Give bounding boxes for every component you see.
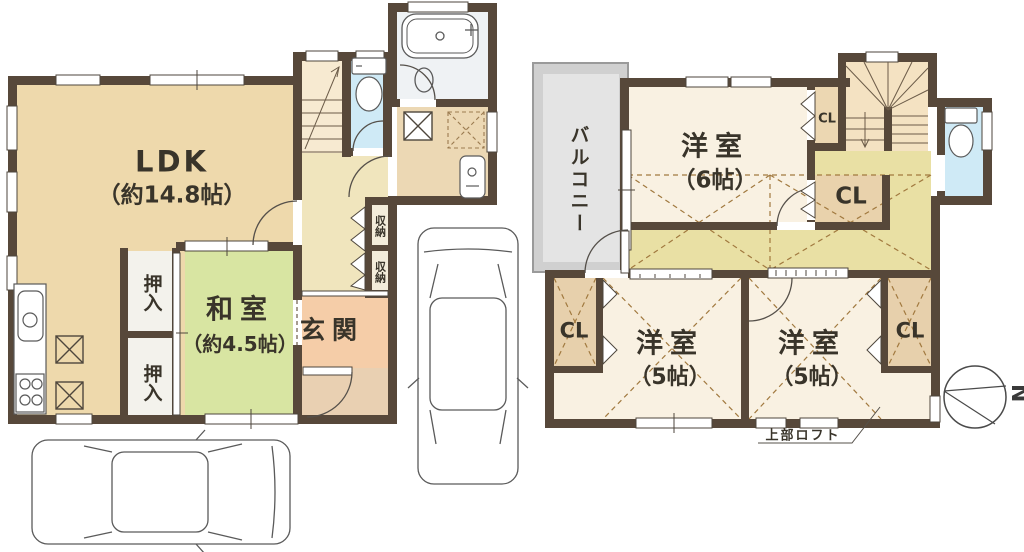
washbasin-icon <box>460 156 485 198</box>
car-icon-vertical <box>408 228 528 484</box>
floor2-plan <box>533 52 992 443</box>
yoshitsu5-right-size-label: （5帖） <box>771 367 852 389</box>
washitsu-size-label: （約4.5帖） <box>182 334 297 354</box>
cl-lower-right-label: CL <box>896 321 925 342</box>
shunou-2-label: 収納 <box>375 261 386 283</box>
cl-lower-left-label: CL <box>560 321 589 342</box>
kitchen-counter <box>14 284 46 414</box>
compass-icon: N <box>944 366 1024 428</box>
cl-large-label: CL <box>835 186 867 209</box>
yoshitsu6-label: 洋室 <box>681 134 749 161</box>
ldk-label: LDK <box>135 148 209 177</box>
shunou-1-label: 収納 <box>375 215 386 237</box>
ldk-size-label: （約14.8帖） <box>98 185 247 208</box>
yoshitsu5-left-label: 洋室 <box>636 331 704 358</box>
yoshitsu5-right-label: 洋室 <box>778 331 846 358</box>
oshiire-2-label: 押入 <box>142 364 161 402</box>
cl-small-label: CL <box>818 113 836 126</box>
yoshitsu5-left-size-label: （5帖） <box>629 367 710 389</box>
balcony-label: バルコニー <box>569 125 588 235</box>
yoshitsu6-size-label: （6帖） <box>672 170 757 193</box>
genkan-label: 玄関 <box>300 318 364 343</box>
compass-north-label: N <box>1006 384 1024 402</box>
washing-machine-icon <box>404 112 432 140</box>
oshiire-1-label: 押入 <box>142 274 161 312</box>
loft-note-label: 上部ロフト <box>765 430 840 443</box>
kitchen-sink-icon <box>18 291 43 341</box>
car-icon-horizontal <box>32 430 290 552</box>
floor-plan-image: N LDK （約14.8帖） 押入 押入 和室 （約4.5帖） 玄関 収納 収納… <box>0 0 1024 552</box>
door-leaf-yoshitsu5-left <box>621 231 629 273</box>
washitsu-label: 和室 <box>206 297 274 324</box>
